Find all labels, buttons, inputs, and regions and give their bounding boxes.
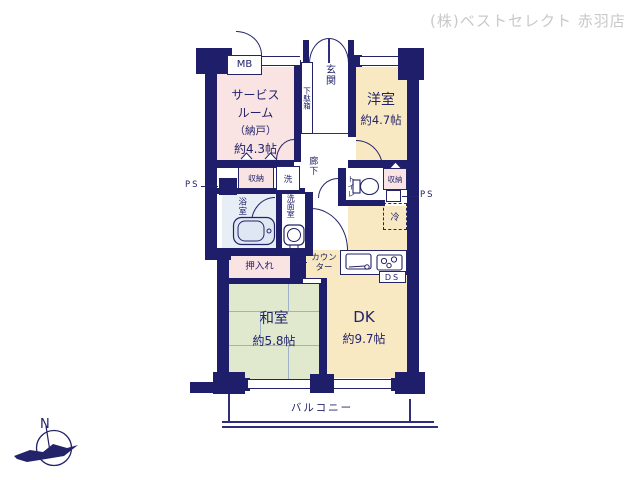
- balcony-rail: [222, 426, 438, 428]
- entrance-door-arc: [309, 38, 329, 63]
- service-room-label: サービス ルーム （納戸） 約4.3帖: [217, 86, 294, 158]
- washer-label: 洗: [284, 173, 293, 185]
- fridge-space: 冷: [383, 203, 407, 230]
- tatami-line: [288, 284, 289, 311]
- storage-left-label: 収納: [248, 173, 264, 184]
- mb-label: MB: [237, 59, 253, 71]
- ps-leader-left: [201, 186, 218, 187]
- stove-icon: [376, 254, 403, 271]
- ps-shaft-left: [219, 178, 237, 195]
- washer-box: 洗: [276, 166, 300, 191]
- entrance-step-line: [313, 133, 348, 134]
- washbasin-icon: [283, 224, 305, 250]
- wall: [190, 382, 214, 393]
- ds-label: DS: [385, 273, 400, 282]
- balcony-label: バルコニー: [262, 402, 382, 414]
- compass-bird: [14, 444, 78, 462]
- wall-pillar: [213, 372, 245, 394]
- hallway-label: 廊下: [307, 156, 317, 176]
- closet-label: 押入れ: [229, 254, 290, 280]
- japanese-room-label: 和室 約5.8帖: [229, 308, 319, 352]
- entrance-door-leaf: [328, 38, 330, 63]
- window: [248, 379, 310, 389]
- counter-leader: [298, 262, 307, 263]
- company-name: (株)ベストセレクト 赤羽店: [430, 13, 626, 30]
- shoe-cabinet-label: 下駄箱: [302, 87, 313, 110]
- sliding-door: [303, 278, 321, 284]
- window: [334, 379, 391, 389]
- bathtub-icon: [232, 216, 276, 246]
- ps-leader-right: [402, 196, 419, 197]
- balcony-rail: [409, 399, 411, 422]
- wall: [391, 378, 397, 391]
- wall-pillar: [395, 372, 425, 394]
- storage-left: 収納: [238, 167, 274, 189]
- wall: [303, 40, 309, 62]
- wall: [276, 192, 282, 252]
- wall: [294, 60, 301, 162]
- floorplan-page: (株)ベストセレクト 赤羽店: [0, 0, 640, 480]
- entrance-label: 玄関: [323, 64, 335, 86]
- ps-shaft-right: [386, 190, 401, 202]
- compass: N: [10, 410, 94, 476]
- kitchen-sink-icon: [345, 253, 372, 272]
- washroom-label: 洗面室: [286, 194, 295, 218]
- wall: [338, 200, 385, 206]
- storage-right: 収納: [383, 168, 407, 190]
- wall: [217, 252, 229, 382]
- shoe-cabinet: 下駄箱: [301, 62, 313, 134]
- wall: [205, 60, 217, 260]
- balcony-rail: [228, 394, 230, 422]
- north-label: N: [40, 417, 50, 432]
- mb-box: MB: [227, 55, 262, 75]
- mb-door-arc: [236, 31, 262, 55]
- entrance-door-arc: [329, 38, 349, 63]
- ds-box: DS: [379, 271, 406, 283]
- balcony-rail: [222, 421, 434, 423]
- storage-right-label: 収納: [388, 174, 403, 185]
- ps-label-left: PS: [185, 181, 200, 191]
- fridge-label: 冷: [390, 210, 399, 223]
- western-room-label: 洋室 約4.7帖: [352, 90, 410, 130]
- bathroom-label: 浴室: [236, 197, 246, 216]
- toilet-icon: [352, 176, 380, 197]
- toilet-label: トイレ: [346, 175, 355, 198]
- dk-room-label: DK 約9.7帖: [321, 306, 407, 350]
- ps-label-right: PS: [420, 191, 435, 201]
- counter-label: カウン ター: [307, 253, 341, 273]
- window: [360, 56, 398, 66]
- wall: [348, 40, 354, 62]
- window: [262, 56, 300, 66]
